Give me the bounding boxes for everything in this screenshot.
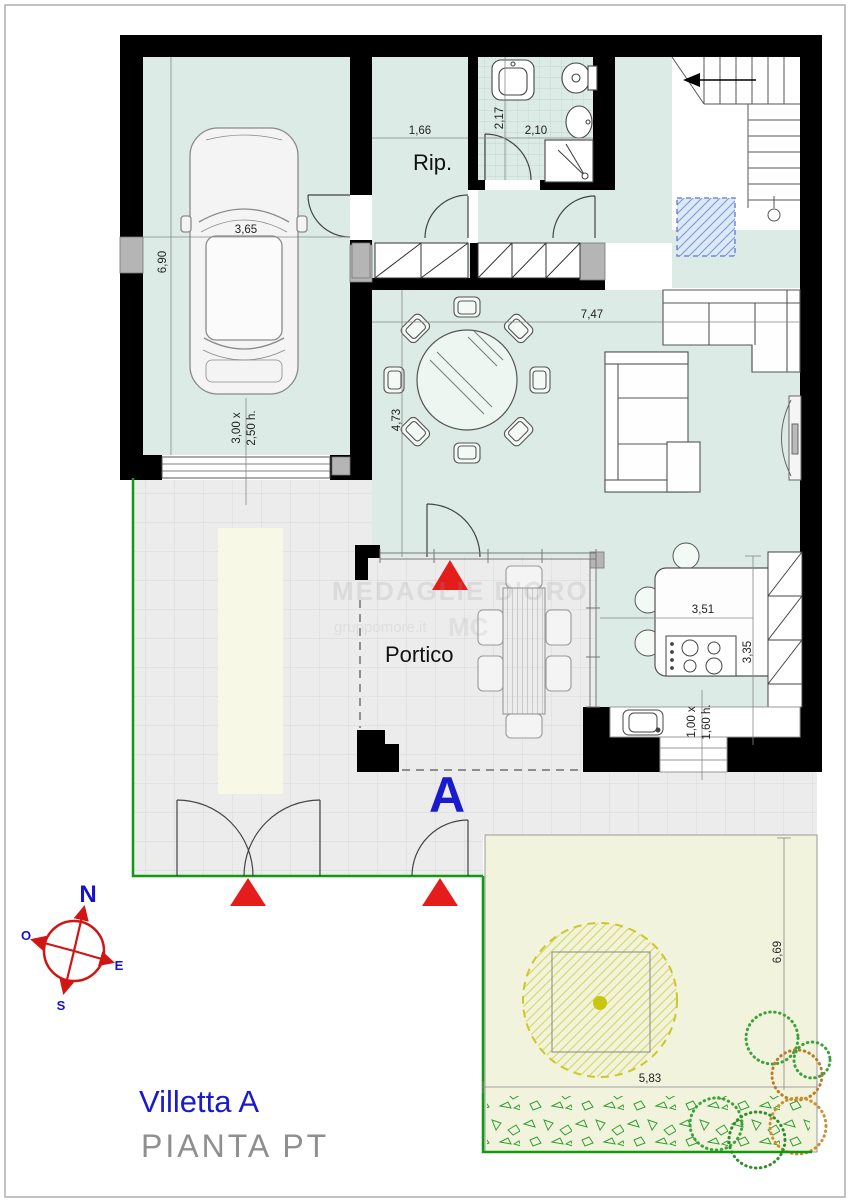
compass-south: S [57, 998, 66, 1013]
sofa [605, 352, 700, 492]
bidet [566, 106, 592, 138]
stove [666, 636, 736, 676]
floor-plan-drawing: 6,90 3,65 3,00 x 2,50 h. 1,66 2,17 2,10 … [0, 0, 850, 1202]
hedge [487, 1096, 810, 1150]
floor-plan-page: 6,90 3,65 3,00 x 2,50 h. 1,66 2,17 2,10 … [0, 0, 850, 1202]
car [181, 128, 307, 394]
svg-text:gruppomore.it: gruppomore.it [334, 619, 427, 636]
garden [485, 835, 830, 1168]
compass-east: E [115, 958, 124, 973]
storage-label: Rip. [413, 150, 452, 175]
driveway-strip [218, 528, 283, 794]
svg-text:MEDAGLIE D'ORO: MEDAGLIE D'ORO [332, 576, 589, 606]
compass-west: O [21, 928, 31, 943]
plan-subtitle: PIANTA PT [141, 1128, 329, 1164]
shower [545, 140, 593, 182]
section-letter: A [429, 767, 465, 823]
portico-label: Portico [385, 642, 453, 667]
tall-cabinets [768, 552, 802, 707]
toilet [562, 63, 597, 93]
skylight-hatch [677, 198, 735, 256]
dim-storage-width: 1,66 [409, 125, 431, 137]
dim-bath-width: 2,10 [525, 125, 547, 137]
dim-living-width: 7,47 [581, 309, 603, 321]
dim-bath-height: 2,17 [494, 107, 506, 129]
dining-table [417, 330, 517, 430]
svg-text:MC: MC [448, 612, 489, 642]
dim-window-h: 1,60 h. [701, 704, 713, 739]
dim-window-w: 1,00 x [686, 706, 698, 738]
dim-garden-width: 5,83 [639, 1073, 661, 1085]
compass-north: N [79, 881, 96, 908]
kitchen-window [660, 737, 727, 772]
dim-garage-door-h: 2,50 h. [246, 410, 258, 445]
dim-kitchen-height: 3,35 [742, 641, 754, 663]
dim-garage-width: 3,65 [235, 224, 257, 236]
dim-garage-door-w: 3,00 x [231, 412, 243, 444]
plan-title: Villetta A [139, 1084, 259, 1119]
wardrobes [375, 243, 580, 278]
dim-kitchen-width: 3,51 [692, 604, 714, 616]
dim-garage-height: 6,90 [157, 251, 169, 273]
tree [523, 923, 677, 1077]
sink [492, 60, 534, 100]
stool [673, 543, 699, 569]
dim-garden-height: 6,69 [772, 941, 784, 963]
portico-table [503, 588, 545, 714]
dim-living-height: 4,73 [391, 409, 403, 431]
